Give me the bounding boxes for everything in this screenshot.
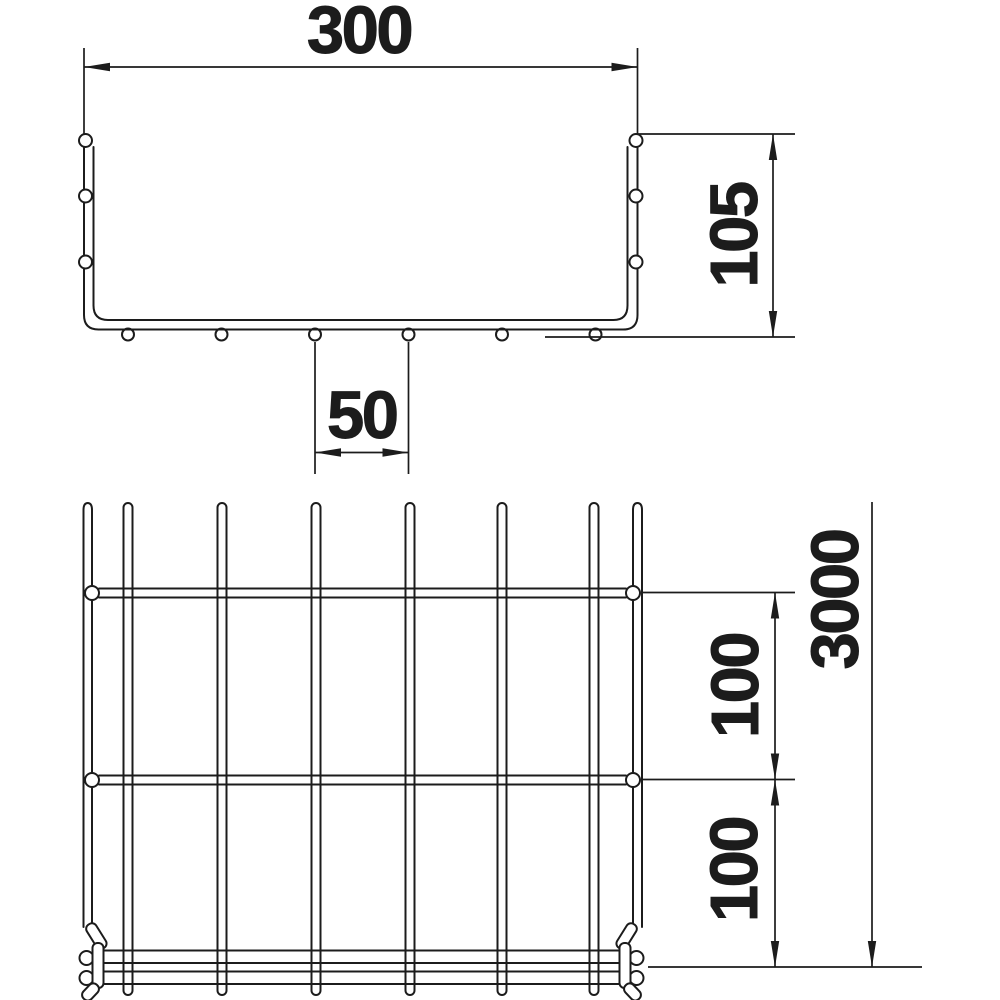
- coupler-foot-left: [80, 921, 109, 1000]
- longitudinal-wires: [84, 503, 643, 995]
- cross-section-view: 300 50: [79, 0, 795, 474]
- side-wire-circle: [630, 134, 643, 147]
- rail-end-hook-circle: [630, 951, 644, 965]
- tray-profile: [79, 134, 643, 341]
- arrowhead-right: [612, 63, 638, 71]
- arrowhead-top: [771, 593, 779, 619]
- dim-width-label: 300: [307, 0, 412, 68]
- rungs: [85, 586, 640, 787]
- tray-inner-profile: [94, 147, 628, 320]
- longitudinal-wire: [590, 503, 599, 995]
- rail-end-hook-circle: [80, 951, 94, 965]
- side-wire-circle: [630, 256, 643, 269]
- mesh-tray-technical-drawing: 300 50: [0, 0, 1000, 1000]
- dim-length-label: 3000: [798, 530, 873, 669]
- dim-wire-spacing-label: 50: [327, 378, 397, 453]
- end-rails: [103, 951, 620, 985]
- foot-vertical-bar: [620, 943, 631, 988]
- rung-end-circle: [85, 773, 99, 787]
- dim-rung-pitch-top-label: 100: [698, 634, 773, 739]
- arrowhead-left: [84, 63, 110, 71]
- dim-height-label: 105: [697, 182, 772, 288]
- arrowhead-bottom: [771, 941, 779, 967]
- longitudinal-wire: [124, 503, 133, 995]
- side-wire-circle: [79, 134, 92, 147]
- longitudinal-wire: [498, 503, 507, 995]
- plan-view: 100 100 3000: [80, 502, 923, 1000]
- dim-rung-pitch-bottom: 100: [648, 780, 922, 968]
- longitudinal-wire: [406, 503, 415, 995]
- dim-width: 300: [84, 0, 638, 134]
- rung-end-circle: [85, 586, 99, 600]
- dim-height: 105: [545, 134, 795, 337]
- side-wire-left: [84, 503, 93, 927]
- rung-end-circle: [626, 773, 640, 787]
- arrowhead-top: [771, 780, 779, 806]
- longitudinal-wire: [312, 503, 321, 995]
- side-wire-circle: [630, 190, 643, 203]
- dim-rung-pitch-top: 100: [642, 593, 795, 780]
- rung-end-circle: [626, 586, 640, 600]
- coupler-foot-right: [615, 921, 644, 1000]
- dim-length: 3000: [798, 502, 876, 967]
- side-wire-circle: [79, 190, 92, 203]
- longitudinal-wire: [218, 503, 227, 995]
- foot-vertical-bar: [93, 943, 104, 988]
- arrowhead-bottom: [771, 754, 779, 780]
- dim-wire-spacing: 50: [315, 342, 409, 474]
- dim-rung-pitch-bottom-label: 100: [697, 818, 772, 923]
- arrowhead-bottom: [868, 941, 876, 967]
- arrowhead-bottom: [769, 311, 777, 337]
- arrowhead-top: [769, 134, 777, 160]
- side-wire-circle: [79, 256, 92, 269]
- tray-outer-profile: [84, 147, 638, 330]
- side-wire-right: [633, 503, 642, 927]
